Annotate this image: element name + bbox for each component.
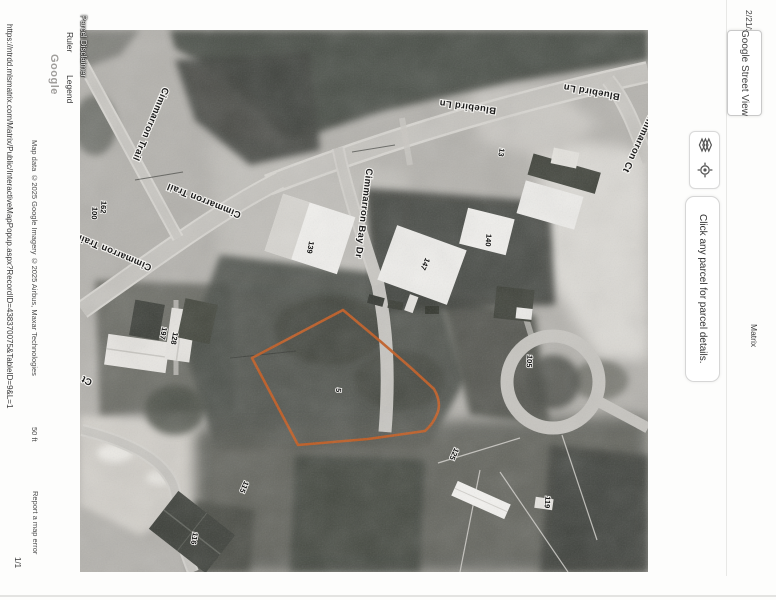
parcel-instruction-text: Click any parcel for parcel details. — [697, 214, 708, 364]
parcel-instruction-box: Click any parcel for parcel details. — [685, 196, 720, 382]
header-title: Matrix — [749, 324, 759, 347]
aerial-parcel-map[interactable]: Bluebird LnBluebird LnCimmarron TrailCim… — [80, 30, 648, 572]
house-number: 5 — [334, 388, 343, 393]
layers-icon[interactable] — [697, 137, 713, 158]
parcel-disclaimer-link[interactable]: Parcel Disclaimer — [79, 15, 88, 77]
ruler-button[interactable]: Ruler — [65, 32, 75, 52]
map-scale-label: 50 ft — [30, 427, 39, 442]
printed-map-page: { "page": { "header_datetime": "2/21/25,… — [0, 0, 776, 600]
google-street-view-button[interactable]: Google Street View — [727, 30, 762, 116]
legend-button[interactable]: Legend — [65, 75, 75, 103]
house-number: 100 — [89, 207, 99, 220]
map-terrain: Bluebird LnBluebird LnCimmarron TrailCim… — [80, 30, 648, 572]
report-map-error-link[interactable]: Report a map error — [31, 491, 40, 554]
google-watermark: Google — [48, 54, 60, 95]
google-street-view-label: Google Street View — [739, 30, 750, 116]
map-attribution: Map data ©2025 Google Imagery ©2025 Airb… — [30, 140, 39, 376]
aerial-imagery[interactable]: Bluebird LnBluebird LnCimmarron TrailCim… — [80, 30, 648, 572]
house-number: 13 — [496, 148, 506, 158]
house-number: 105 — [524, 355, 534, 368]
house-number: 119 — [542, 496, 552, 509]
my-location-icon[interactable] — [697, 162, 713, 183]
map-tools-group — [689, 131, 720, 189]
house-number: 140 — [483, 234, 493, 247]
page-bottom-rule — [0, 595, 776, 597]
footer-url: https://ntrdd.mlsmatrix.com/Matrix/Publi… — [5, 24, 14, 408]
footer-page-number: 1/1 — [13, 557, 22, 568]
